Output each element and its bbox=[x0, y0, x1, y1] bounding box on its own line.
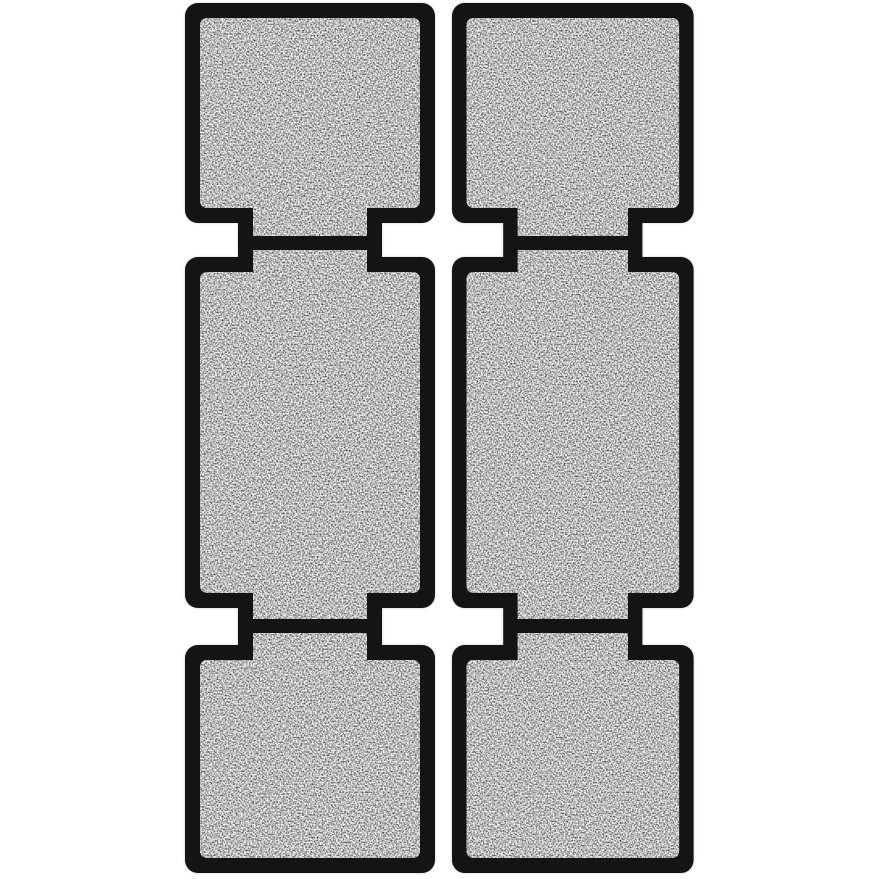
left-strip-middle-panel-foam bbox=[200, 272, 420, 593]
right-filter-strip bbox=[452, 3, 694, 873]
left-strip-bottom-panel-foam bbox=[200, 660, 420, 858]
white-background bbox=[0, 0, 879, 879]
product-photo-stage bbox=[0, 0, 879, 879]
right-strip-top-panel-foam bbox=[466, 18, 679, 208]
right-strip-middle-panel-foam bbox=[466, 272, 679, 593]
left-strip-top-panel-foam bbox=[200, 18, 420, 208]
right-strip-bottom-panel-foam bbox=[466, 660, 679, 858]
left-filter-strip bbox=[185, 3, 435, 873]
product-image bbox=[0, 0, 879, 879]
